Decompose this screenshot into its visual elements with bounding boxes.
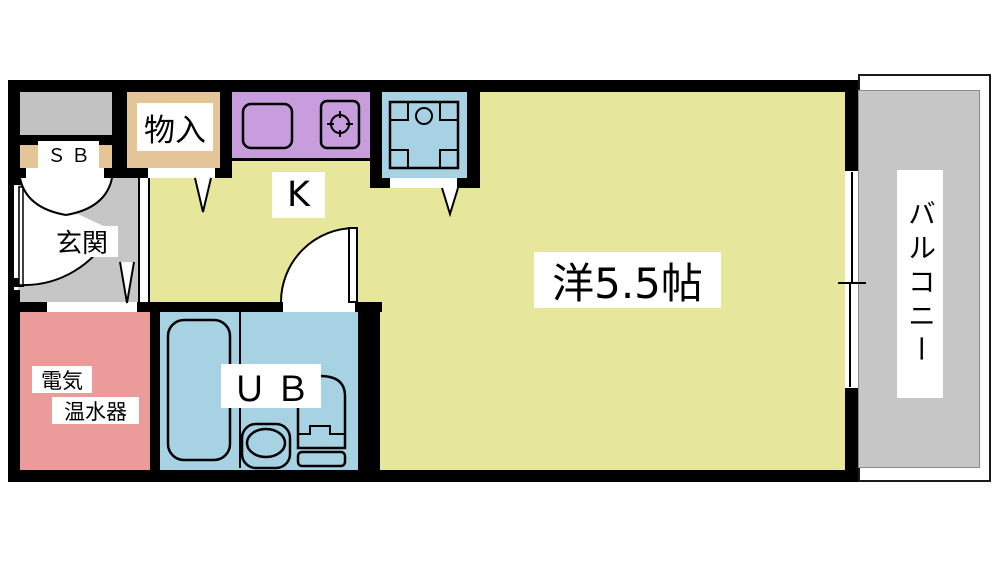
label-closet: 物入 [137,103,213,151]
wall-sb-closet-divider [112,92,127,178]
wall-closet-bottom-left [104,168,148,178]
wall-entrance-bottom-left [18,302,47,312]
wall-segment [457,178,467,188]
wall-right-upper [845,80,858,171]
door-hinge-block [14,278,24,287]
kitchen-counter [232,92,370,161]
wall-left-door-jamb [8,183,14,290]
opening-washer [390,178,457,188]
label-storage-box: ＳＢ [38,141,99,168]
opening-closet [148,168,215,178]
washer-alcove [382,90,467,178]
wall-ub-top [137,302,283,312]
opening-entrance [47,302,137,312]
opening-ub-door [283,302,355,312]
wall-segment [18,168,26,178]
label-balcony: バルコニー [897,170,943,398]
wall-washer-right [467,80,480,188]
wall-kitchen-washer [370,80,382,188]
wall-ub-left [150,312,160,470]
wall-left-lower [8,290,20,482]
floor-plan: ＳＢ 物入 K 玄関 洋5.5帖 電気 温水器 ＵＢ バルコニー [0,0,1000,562]
label-unit-bath: ＵＢ [221,364,321,408]
wall-top [8,80,858,92]
label-western-room: 洋5.5帖 [534,252,721,308]
wall-kitchen-left [220,80,232,178]
label-kitchen: K [272,172,325,218]
wall-right-lower [845,388,858,482]
wall-ub-right [358,302,380,470]
wall-entrance-thin-line [138,178,140,302]
wall-segment [382,178,390,188]
label-water-heater-line2: 温水器 [52,397,139,424]
label-water-heater-line1: 電気 [32,366,92,393]
wall-entrance-thin-line [148,178,150,302]
label-entrance: 玄関 [46,226,118,257]
wall-bottom [8,470,858,482]
meter-box-floor [18,92,112,135]
opening-sb [26,168,104,178]
